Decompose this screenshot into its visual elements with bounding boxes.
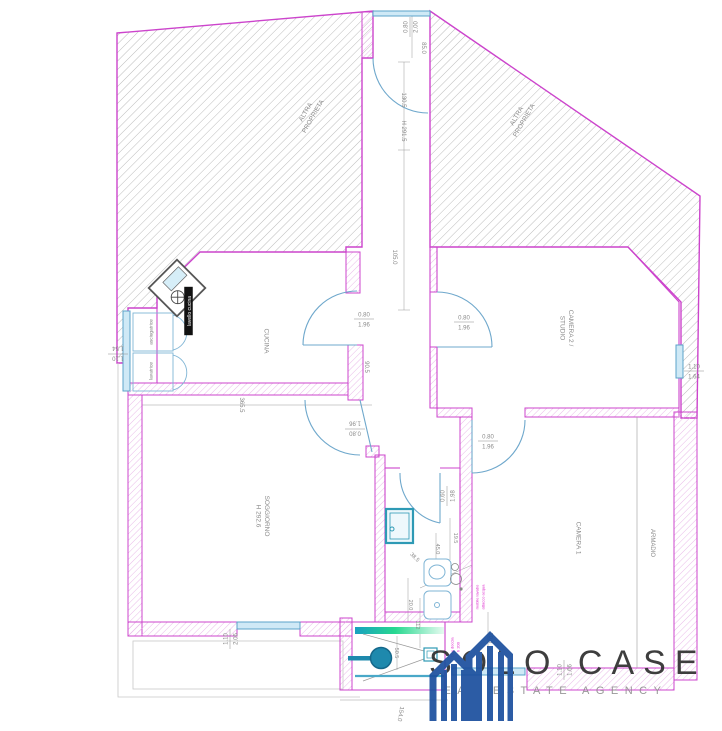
room-label-camera2-studio: CAMERA 2 /STUDIO (558, 310, 574, 347)
dim-kitchen-door: 0.801.96 (354, 313, 374, 329)
shower-head-icon (371, 648, 392, 669)
dim-corridor-130: 130.5 (400, 92, 406, 108)
dim-window-left-text: 1.54 (112, 345, 124, 351)
wall-camere-divider-a (437, 408, 472, 417)
room-label-camera2-studio-text: CAMERA 2 / (567, 310, 574, 347)
dim-corridor-105-text: 105.0 (391, 249, 397, 265)
dim-doccia-154: 154.0 (396, 706, 405, 722)
door-leaf-end-stub (366, 446, 379, 457)
note-mobile-lavabo: mobile lavaboattacco acqua (474, 584, 485, 610)
wall-kitchen-right (346, 252, 360, 293)
dim-bagno-door-text: 0.60 (441, 490, 447, 502)
dim-camera1-door-text: 0.80 (482, 435, 494, 441)
dim-bagno-20: 20.0 (407, 600, 413, 611)
wall-camera2-left-b (430, 347, 437, 408)
room-label-camera2-studio-text: STUDIO (558, 316, 565, 341)
room-label-cucina-text: CUCINA (263, 329, 270, 355)
room-label-soggiorno-text: H 292.6 (254, 505, 261, 528)
floorplan-drawing: CUCINASOGGIORNOH 292.6CAMERA 2 /STUDIOCA… (0, 0, 722, 731)
note-mobile-lavabo-text: mobile lavabo (474, 584, 479, 609)
dim-bagno-door: 0.601.98 (441, 486, 457, 506)
dim-bagno-19-text: 19.5 (452, 533, 458, 544)
note-mobile-lavabo-text: attacco acqua (480, 584, 485, 610)
room-label-soggiorno: SOGGIORNOH 292.6 (254, 496, 270, 537)
appliance-label-asciugatrice: asciugatrice (149, 319, 155, 345)
floorplan-page: CUCINASOGGIORNOH 292.6CAMERA 2 /STUDIOCA… (0, 0, 722, 731)
dim-doccia-50-text: 50.5 (393, 648, 399, 659)
dim-hall-90-text: 90.5 (363, 361, 369, 373)
agency-logo-buildings-icon (425, 624, 513, 724)
dim-bagno-45: 45.0 (434, 544, 440, 555)
dim-soggiorno-door-text: 1.96 (349, 420, 361, 426)
wc (424, 559, 451, 586)
dim-camera2-door-text: 0.80 (458, 316, 470, 322)
dim-bagno-112-text: 112 (414, 621, 420, 630)
wall-camere-divider-b (525, 408, 679, 417)
dim-camera2-door-text: 1.96 (458, 326, 470, 332)
wall-soggiorno-bottom-a (128, 622, 237, 636)
wall-bagno-right (460, 417, 472, 622)
room-label-cucina: CUCINA (263, 329, 270, 355)
wall-camera2-left-a (430, 247, 437, 292)
dim-window-camera2-text: 1.64 (688, 375, 700, 381)
dim-bagno-38: 38.5 (408, 552, 420, 564)
dim-bagno-19: 19.5 (452, 533, 458, 544)
dim-doccia-154-text: 154.0 (396, 706, 405, 722)
dim-kitchen-door-text: 0.80 (358, 313, 370, 319)
window-camera2 (676, 345, 683, 378)
dim-soggiorno-door-text: 0.80 (349, 430, 361, 436)
appliance-label-lavatrice: lavatrice (149, 362, 155, 380)
door-arc-soggiorno (305, 400, 360, 455)
dim-hall-90: 90.5 (363, 361, 369, 373)
dim-bagno-45-text: 45.0 (434, 544, 440, 555)
dim-bagno-door-text: 1.98 (451, 490, 457, 502)
dim-camera1-door: 0.801.96 (478, 435, 498, 451)
agency-logo: SOLO CASE REAL ESTATE AGENCY (425, 624, 707, 697)
wall-soggiorno-left (128, 395, 142, 636)
shower-arm (348, 656, 372, 661)
wall-bagno-left (375, 455, 385, 622)
dim-window-soggiorno-text: 2.06 (234, 633, 240, 645)
dim-bagno-112: 112 (414, 621, 420, 630)
room-label-camera1-text: CAMERA 1 (575, 522, 582, 555)
wall-entrance-left (362, 12, 373, 58)
dim-camera2-door: 0.801.96 (454, 316, 474, 332)
dim-camera1-door-text: 1.96 (482, 445, 494, 451)
dim-corridor-105: 105.0 (391, 249, 397, 265)
room-label-armadio: ARMADIO (649, 529, 655, 557)
room-label-soggiorno-text: SOGGIORNO (263, 496, 270, 537)
bidet (424, 591, 451, 619)
dim-window-soggiorno-text: 1.10 (224, 633, 230, 645)
dim-bagno-20-text: 20.0 (407, 600, 413, 611)
dim-soggiorno-door: 0.801.96 (345, 420, 365, 436)
appliance-label-lavello-cucina: lavello cucina (184, 287, 193, 335)
dim-entrance-door-text: 0.80 (404, 21, 410, 33)
dim-corridor-130-text: 130.5 (400, 92, 406, 108)
dim-window-left-text: 1.10 (112, 355, 124, 361)
bathroom-fixtures (386, 509, 462, 619)
dim-kitchen-door-text: 1.96 (358, 323, 370, 329)
window-soggiorno (237, 622, 300, 629)
door-arc-cucina (303, 291, 357, 345)
dim-soggiorno-365: 365.5 (238, 397, 244, 413)
entrance-threshold (373, 11, 430, 16)
dim-entrance-door: 0.802.00 (404, 17, 420, 37)
room-label-camera1: CAMERA 1 (575, 522, 582, 555)
room-label-armadio-text: ARMADIO (649, 529, 655, 557)
dim-window-camera2-text: 1.10 (688, 365, 700, 371)
dim-bagno-38-text: 38.5 (408, 552, 420, 564)
dim-entrance-door-text: 2.00 (414, 21, 420, 33)
wall-doccia-left (340, 618, 352, 690)
dim-corridor-h291-text: H 291.5 (400, 120, 406, 142)
wall-hall-stub (348, 345, 363, 400)
appliance-label-lavatrice-text: lavatrice (149, 362, 155, 380)
dim-corridor-h291: H 291.5 (400, 120, 406, 142)
wall-soggiorno-top (128, 383, 348, 395)
dim-entrance-85-text: 85.0 (420, 42, 426, 54)
appliance-label-lavello-cucina-text: lavello cucina (187, 296, 193, 326)
hatch-region-other-property-right (430, 11, 700, 418)
dim-entrance-85: 85.0 (420, 42, 426, 54)
dim-soggiorno-365-text: 365.5 (238, 397, 244, 413)
appliance-label-asciugatrice-text: asciugatrice (149, 319, 155, 345)
utility-closets (133, 313, 187, 391)
door-arc-camera1 (472, 420, 525, 473)
hatch-region-other-property-left (117, 11, 373, 363)
dim-doccia-50: 50.5 (393, 648, 399, 659)
